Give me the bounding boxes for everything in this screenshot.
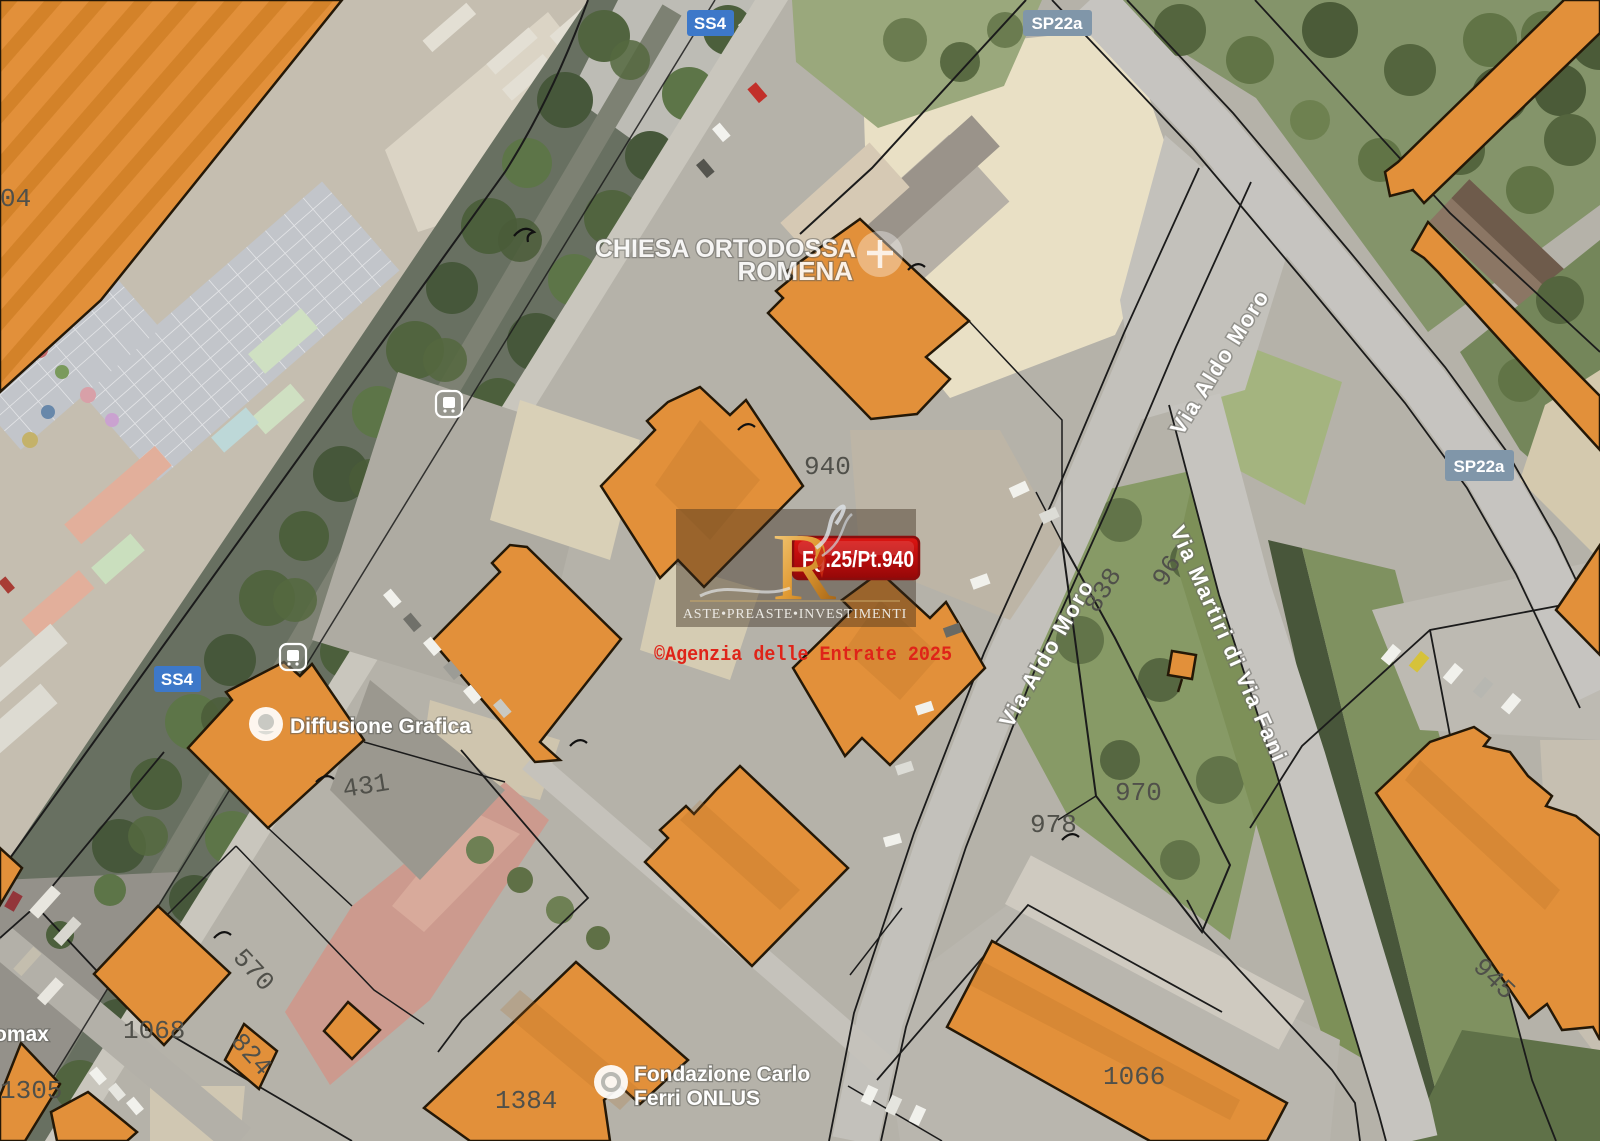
- svg-text:940: 940: [804, 452, 851, 482]
- svg-text:04: 04: [0, 184, 31, 214]
- svg-text:R: R: [772, 513, 836, 620]
- svg-text:1305: 1305: [0, 1076, 62, 1106]
- svg-text:Fondazione Carlo: Fondazione Carlo: [634, 1063, 810, 1086]
- svg-text:SS4: SS4: [161, 670, 194, 689]
- svg-text:1384: 1384: [495, 1086, 557, 1116]
- svg-text:1068: 1068: [123, 1016, 185, 1046]
- svg-text:978: 978: [1030, 810, 1077, 840]
- svg-text:SP22a: SP22a: [1031, 14, 1083, 33]
- svg-text:970: 970: [1115, 778, 1162, 808]
- svg-text:SS4: SS4: [694, 14, 727, 33]
- svg-text:Diffusione Grafica: Diffusione Grafica: [290, 715, 471, 738]
- svg-text:SP22a: SP22a: [1453, 457, 1505, 476]
- svg-text:Ferri ONLUS: Ferri ONLUS: [634, 1087, 760, 1110]
- svg-text:ASTE•PREASTE•INVESTIMENTI: ASTE•PREASTE•INVESTIMENTI: [683, 607, 907, 622]
- svg-text:ROMENA: ROMENA: [737, 256, 853, 286]
- svg-text:©Agenzia delle Entrate 2025: ©Agenzia delle Entrate 2025: [654, 644, 952, 667]
- svg-text:1066: 1066: [1103, 1062, 1165, 1092]
- svg-text:omax: omax: [0, 1023, 49, 1046]
